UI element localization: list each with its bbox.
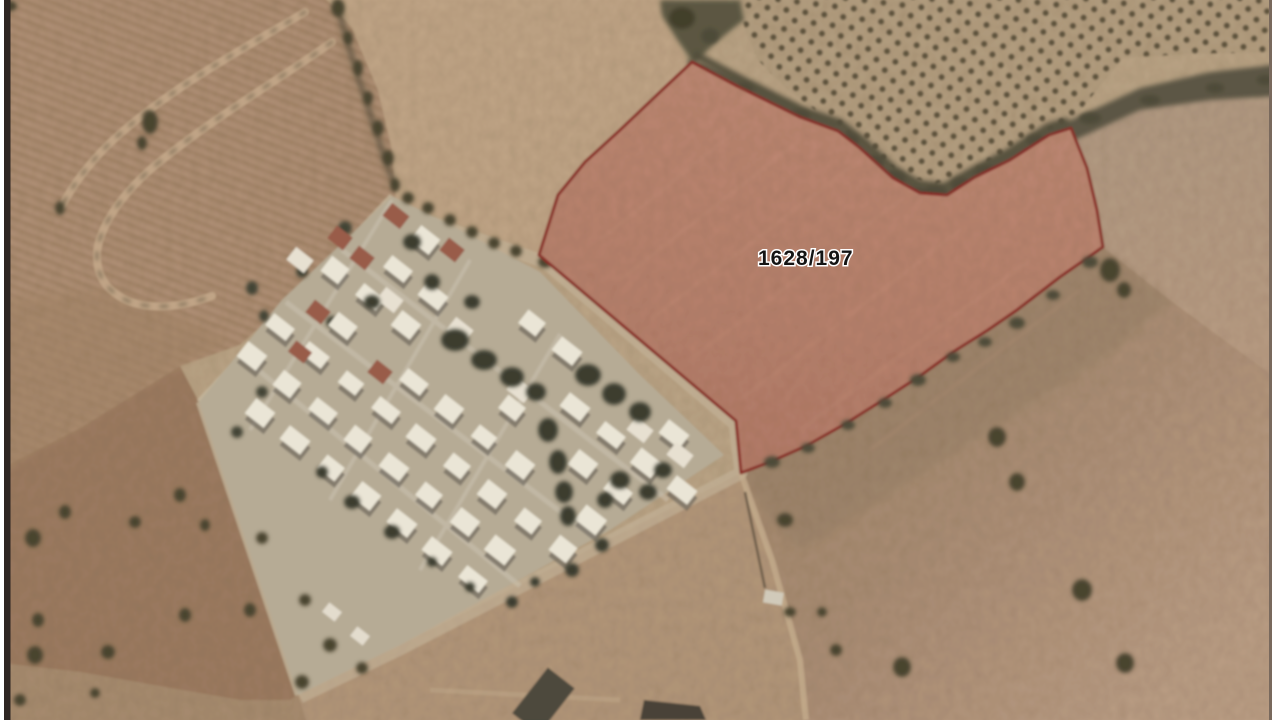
- svg-text:1628/197: 1628/197: [758, 247, 854, 270]
